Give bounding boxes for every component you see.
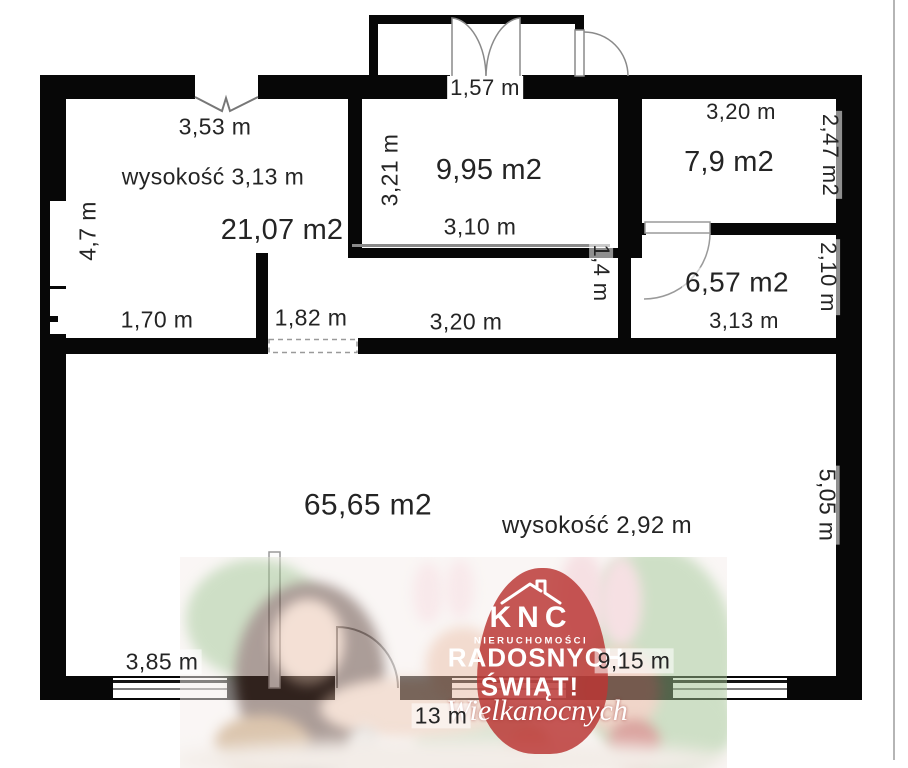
dimension-label: 2,10 m	[816, 239, 840, 315]
passage-opening	[269, 340, 357, 353]
dimension-label: 13 m	[412, 703, 471, 728]
dimension-label: 1,82 m	[272, 305, 351, 330]
floor-plan-image: KNC NIERUCHOMOŚCI RADOSNYCH ŚWIĄT! Wielk…	[0, 0, 908, 768]
dimension-label: 5,05 m	[814, 466, 839, 545]
ceiling-height-label: wysokość 3,13 m	[119, 164, 307, 189]
image-edge-line	[893, 0, 895, 760]
dimension-label: 1,57 m	[447, 76, 523, 100]
dimension-label: 4,7 m	[75, 198, 100, 264]
dimension-label: 3,21 m	[377, 131, 402, 210]
dimension-label: 9,15 m	[595, 648, 674, 673]
room-area-label: 21,07 m2	[218, 215, 347, 247]
bunny-ear	[413, 562, 443, 624]
room-area-label: 65,65 m2	[301, 489, 435, 522]
dimension-label: 3,13 m	[706, 309, 782, 333]
room-area-label: 7,9 m2	[681, 147, 777, 179]
dimension-label: 2,47 m2	[818, 111, 842, 199]
dimension-label: 1,4 m	[589, 241, 613, 304]
dimension-label: 3,10 m	[441, 214, 520, 239]
bunny-ear	[600, 557, 642, 647]
balcony-side-door	[575, 30, 628, 76]
bunny-ear	[446, 559, 474, 619]
dimension-label: 3,85 m	[123, 649, 202, 674]
dimension-label: 3,20 m	[427, 309, 506, 334]
ceiling-height-label: wysokość 2,92 m	[499, 513, 695, 539]
bay-window-symbol	[195, 97, 258, 111]
greeting-line3: Wielkanocnych	[446, 694, 628, 728]
brand-name: KNC	[490, 601, 573, 635]
dimension-label: 1,70 m	[118, 307, 197, 332]
room-area-label: 9,95 m2	[433, 155, 545, 187]
dimension-label: 3,53 m	[176, 114, 255, 139]
french-door-symbol	[452, 18, 520, 77]
mother-face	[272, 599, 344, 685]
dimension-label: 3,20 m	[703, 100, 779, 124]
room-area-label: 6,57 m2	[682, 268, 792, 299]
